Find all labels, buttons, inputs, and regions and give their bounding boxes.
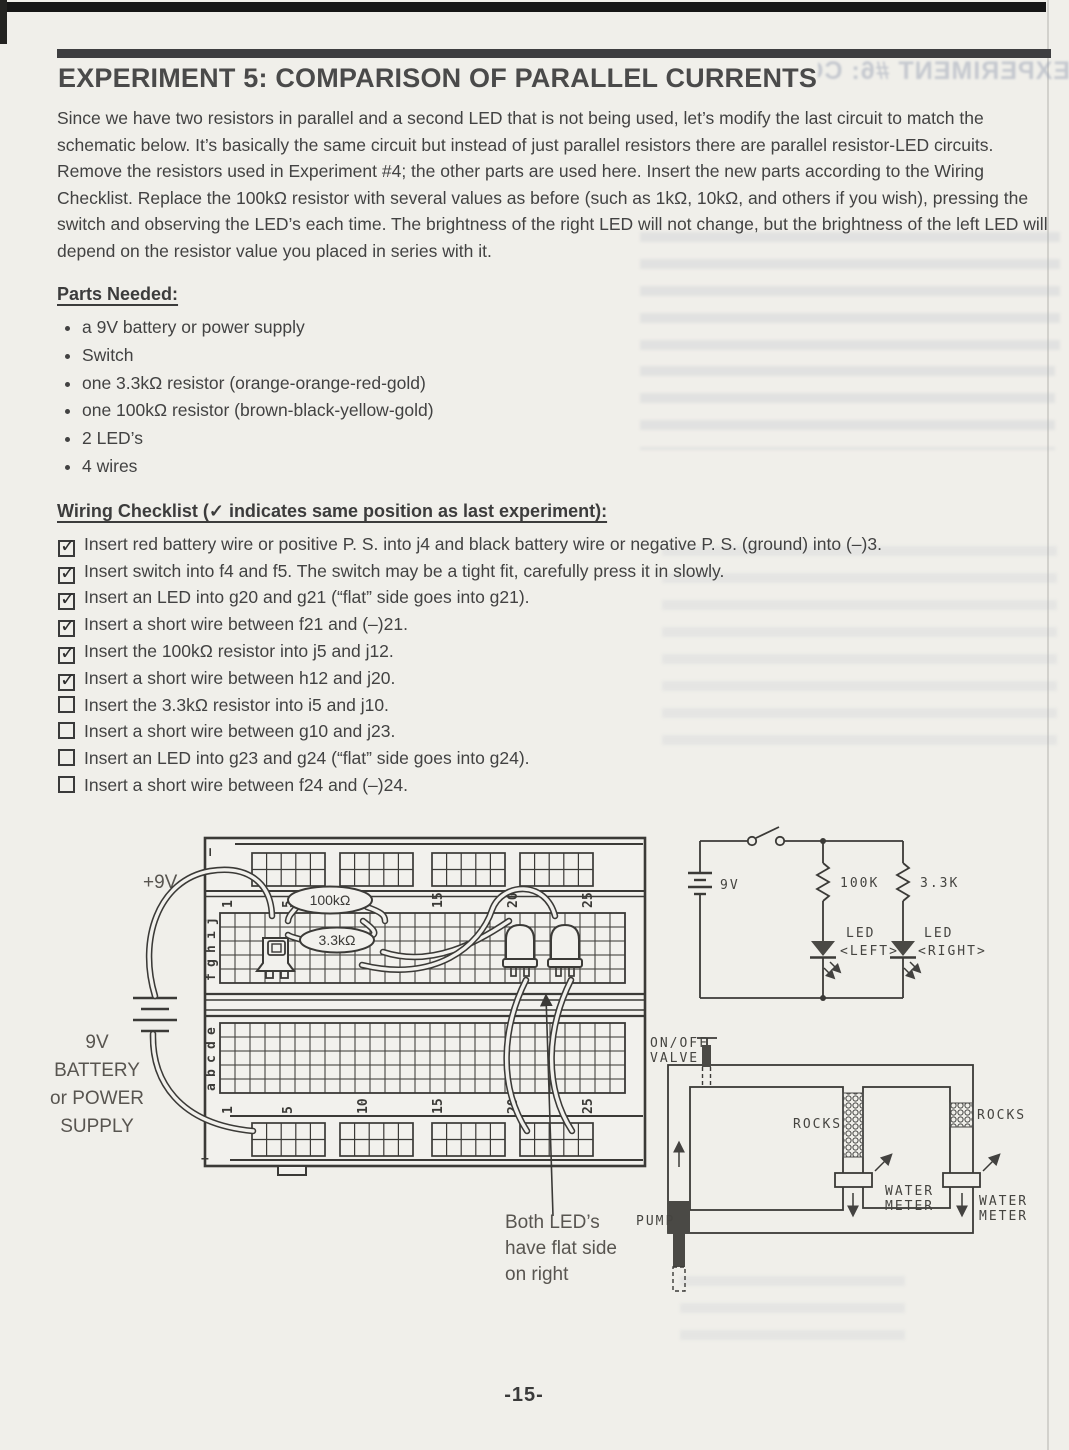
led-left-label: <LEFT> bbox=[840, 944, 899, 959]
title-bar-rule bbox=[57, 49, 1051, 58]
checkbox-icon: ✓ bbox=[58, 540, 75, 557]
column-number: 1 bbox=[221, 1106, 236, 1114]
scan-corner-mark bbox=[0, 0, 7, 44]
checklist-item-text: Insert a short wire between f24 and (–)2… bbox=[84, 775, 408, 795]
junction-dot bbox=[820, 995, 826, 1001]
page-content: EXPERIMENT 5: COMPARISON OF PARALLEL CUR… bbox=[57, 49, 1051, 799]
row-letter: g bbox=[204, 959, 219, 967]
checklist-item: Insert a short wire between f24 and (–)2… bbox=[58, 772, 1051, 799]
resistor-100k-label: 100kΩ bbox=[310, 892, 351, 908]
checklist-item: Insert a short wire between g10 and j23. bbox=[58, 718, 1051, 745]
resistor-3k3: 3.3kΩ bbox=[288, 921, 374, 953]
checklist-item-text: Insert the 100kΩ resistor into j5 and j1… bbox=[84, 641, 394, 661]
led-callout-text: on right bbox=[505, 1264, 569, 1285]
led-left-label: LED bbox=[846, 926, 875, 941]
column-number: 10 bbox=[356, 892, 371, 908]
meter-needle-arrow bbox=[875, 1155, 891, 1171]
valve-symbol bbox=[697, 1038, 717, 1087]
checklist-item: ✓Insert a short wire between f21 and (–)… bbox=[58, 611, 1051, 638]
checklist-item: ✓Insert an LED into g20 and g21 (“flat” … bbox=[58, 584, 1051, 611]
board-mount-tab bbox=[278, 1166, 306, 1175]
row-letter: c bbox=[204, 1055, 219, 1063]
wire-f21-minus21 bbox=[507, 980, 527, 1131]
page-number: -15- bbox=[0, 1384, 1048, 1407]
junction-dot bbox=[820, 838, 826, 844]
checklist-item-text: Insert an LED into g23 and g24 (“flat” s… bbox=[84, 748, 530, 768]
checklist-item-text: Insert an LED into g20 and g21 (“flat” s… bbox=[84, 587, 530, 607]
wire-h12-j20 bbox=[383, 921, 509, 957]
checklist-item: ✓Insert the 100kΩ resistor into j5 and j… bbox=[58, 638, 1051, 665]
column-number: 20 bbox=[506, 892, 521, 908]
meter-needle-arrow bbox=[983, 1155, 999, 1171]
scanned-manual-page: { "page": { "title": "EXPERIMENT 5: COMP… bbox=[0, 0, 1069, 1450]
checklist-item-text: Insert a short wire between h12 and j20. bbox=[84, 668, 395, 688]
switch-symbol bbox=[748, 827, 784, 845]
battery-symbol bbox=[688, 873, 712, 894]
checkbox-icon: ✓ bbox=[58, 593, 75, 610]
led-right-label: <RIGHT> bbox=[918, 944, 987, 959]
wire-g10-j23 bbox=[362, 889, 555, 970]
resistor-100k: 100kΩ bbox=[288, 887, 385, 922]
callout-pointer-line bbox=[546, 996, 553, 1216]
column-number: 1 bbox=[221, 900, 236, 908]
wiring-checklist: ✓Insert red battery wire or positive P. … bbox=[58, 531, 1051, 799]
rail-plus-label: + bbox=[201, 1152, 209, 1167]
row-letter: j bbox=[204, 917, 219, 925]
list-item: 4 wires bbox=[82, 453, 1051, 481]
checkbox-icon bbox=[58, 749, 75, 766]
column-number: 15 bbox=[431, 1098, 446, 1114]
checkbox-icon bbox=[58, 776, 75, 793]
water-meter-label: METER bbox=[979, 1209, 1028, 1224]
checklist-item: Insert the 3.3kΩ resistor into i5 and j1… bbox=[58, 692, 1051, 719]
checklist-item: ✓Insert a short wire between h12 and j20… bbox=[58, 665, 1051, 692]
plus-9v-label: +9V bbox=[143, 872, 178, 893]
list-item: 2 LED’s bbox=[82, 425, 1051, 453]
checklist-item: ✓Insert red battery wire or positive P. … bbox=[58, 531, 1051, 558]
checklist-item-text: Insert red battery wire or positive P. S… bbox=[84, 534, 882, 554]
row-letter: i bbox=[204, 931, 219, 939]
led-right bbox=[548, 925, 582, 976]
battery-caption: BATTERY bbox=[54, 1060, 140, 1081]
valve-label: ON/OFF bbox=[650, 1036, 709, 1051]
breadboard-grid-bottom bbox=[220, 1023, 625, 1093]
checklist-item: Insert an LED into g23 and g24 (“flat” s… bbox=[58, 745, 1051, 772]
list-item: one 100kΩ resistor (brown-black-yellow-g… bbox=[82, 397, 1051, 425]
column-number: 25 bbox=[581, 892, 596, 908]
list-item: one 3.3kΩ resistor (orange-orange-red-go… bbox=[82, 370, 1051, 398]
battery-voltage-label: 9V bbox=[720, 878, 740, 893]
page-title: EXPERIMENT 5: COMPARISON OF PARALLEL CUR… bbox=[58, 61, 1051, 95]
battery-caption: 9V bbox=[85, 1032, 109, 1053]
list-item: a 9V battery or power supply bbox=[82, 314, 1051, 342]
row-letter: b bbox=[204, 1069, 219, 1077]
column-number: 20 bbox=[506, 1098, 521, 1114]
checklist-item-text: Insert a short wire between f21 and (–)2… bbox=[84, 614, 408, 634]
wiring-checklist-heading: Wiring Checklist (✓ indicates same posit… bbox=[57, 501, 607, 522]
breadboard-body bbox=[205, 838, 645, 1166]
rail-minus-label: – bbox=[203, 848, 218, 856]
wire-battery-negative bbox=[153, 1034, 253, 1131]
breadboard-figure: – – + j i h g f e d c b a 1 5 10 15 20 2… bbox=[40, 828, 660, 1298]
switch-component bbox=[257, 938, 294, 978]
checklist-item-text: Insert a short wire between g10 and j23. bbox=[84, 721, 395, 741]
column-number: 10 bbox=[356, 1098, 371, 1114]
checkbox-icon: ✓ bbox=[58, 647, 75, 664]
resistor-left-label: 100K bbox=[840, 876, 879, 891]
checkbox-icon: ✓ bbox=[58, 567, 75, 584]
column-number: 15 bbox=[431, 892, 446, 908]
checkbox-icon: ✓ bbox=[58, 620, 75, 637]
battery-symbol bbox=[133, 998, 177, 1031]
led-symbol-left bbox=[810, 941, 840, 978]
pump-symbol bbox=[668, 1201, 690, 1291]
water-meter-label: WATER bbox=[979, 1194, 1028, 1209]
column-number: 5 bbox=[281, 1106, 296, 1114]
row-letter: e bbox=[204, 1027, 219, 1035]
checklist-item-text: Insert switch into f4 and f5. The switch… bbox=[84, 561, 724, 581]
checklist-item-text: Insert the 3.3kΩ resistor into i5 and j1… bbox=[84, 695, 389, 715]
rocks-patch-right bbox=[950, 1103, 973, 1127]
led-callout-text: Both LED’s bbox=[505, 1212, 600, 1233]
rocks-label: ROCKS bbox=[977, 1108, 1026, 1123]
rocks-patch-left bbox=[843, 1093, 863, 1157]
list-item: Switch bbox=[82, 342, 1051, 370]
rail-minus-label: – bbox=[209, 1115, 217, 1130]
resistor-3k3-label: 3.3kΩ bbox=[319, 932, 356, 948]
water-meter-label: METER bbox=[885, 1199, 934, 1214]
intro-paragraph: Since we have two resistors in parallel … bbox=[57, 105, 1051, 264]
circuit-schematic-figure: 9V 100K 3.3K LED <LEFT> LED <RIGHT> bbox=[680, 825, 1010, 1025]
scan-edge-strip bbox=[0, 2, 1046, 12]
checkbox-icon bbox=[58, 722, 75, 739]
checklist-item: ✓Insert switch into f4 and f5. The switc… bbox=[58, 558, 1051, 585]
battery-caption: SUPPLY bbox=[60, 1116, 134, 1137]
water-analogy-figure: ON/OFF VALVE ROCKS ROCKS WATER METER WAT… bbox=[635, 1025, 1065, 1300]
row-letter: d bbox=[204, 1041, 219, 1049]
wire-f24-minus24 bbox=[552, 980, 572, 1131]
column-number: 25 bbox=[581, 1098, 596, 1114]
row-letter: h bbox=[204, 945, 219, 953]
water-meter-label: WATER bbox=[885, 1184, 934, 1199]
rocks-label: ROCKS bbox=[793, 1117, 842, 1132]
parts-needed-list: a 9V battery or power supply Switch one … bbox=[57, 314, 1051, 481]
valve-label: VALVE bbox=[650, 1051, 699, 1066]
led-callout-text: have flat side bbox=[505, 1238, 617, 1259]
led-right-label: LED bbox=[924, 926, 953, 941]
pump-label: PUMP bbox=[636, 1214, 675, 1229]
breadboard-grid-top bbox=[220, 913, 625, 983]
water-meter-left bbox=[835, 1173, 872, 1187]
parts-needed-heading: Parts Needed: bbox=[57, 284, 178, 305]
row-letter: f bbox=[204, 973, 219, 981]
battery-caption: or POWER bbox=[50, 1088, 144, 1109]
led-symbol-right bbox=[890, 941, 920, 978]
checkbox-icon bbox=[58, 696, 75, 713]
wire-battery-positive bbox=[149, 870, 272, 996]
pipe-loop bbox=[668, 1065, 973, 1233]
bleedthrough-block bbox=[680, 1276, 905, 1342]
resistor-right-label: 3.3K bbox=[920, 876, 959, 891]
column-number: 5 bbox=[281, 900, 296, 908]
checkbox-icon: ✓ bbox=[58, 674, 75, 691]
water-meter-right bbox=[943, 1173, 980, 1187]
row-letter: a bbox=[204, 1083, 219, 1091]
led-left bbox=[503, 925, 537, 976]
